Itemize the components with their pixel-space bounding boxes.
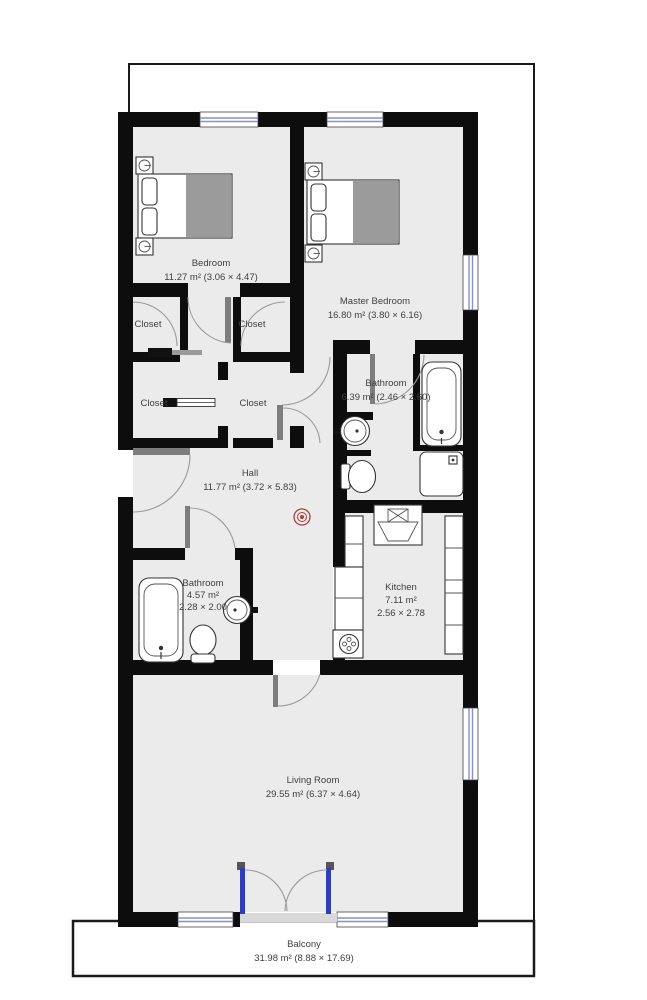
- kitchen-counter-right: [445, 516, 463, 654]
- bathtub-icon: [139, 578, 183, 662]
- french-door-panel-right: [326, 868, 331, 914]
- french-door-sill: [240, 913, 337, 922]
- master-bedroom-label: Master Bedroom: [340, 296, 410, 307]
- bathroom-master-label: Bathroom: [365, 378, 406, 389]
- stove-icon: [340, 635, 359, 654]
- window-living-bottom-left: [178, 912, 233, 927]
- bed-blanket: [353, 181, 398, 243]
- living-room-label: Living Room: [287, 775, 340, 786]
- living-room-door-leaf: [273, 675, 278, 707]
- bathroom-door-leaf: [185, 506, 190, 548]
- closet-bl-label: Closet: [141, 398, 168, 409]
- floor-plan-canvas: Bedroom 11.27 m² (3.06 × 4.47) Master Be…: [0, 0, 647, 1000]
- toilet-icon: [190, 625, 216, 663]
- entry-door-leaf: [133, 448, 190, 455]
- shower-icon: [420, 452, 463, 496]
- window-master-top: [327, 112, 383, 127]
- kitchen-dims: 2.56 × 2.78: [377, 608, 425, 619]
- closet-br-door-leaf: [277, 405, 283, 440]
- kitchen-label: Kitchen: [385, 582, 417, 593]
- balcony-label: Balcony: [287, 939, 321, 950]
- closet-br-label: Closet: [240, 398, 267, 409]
- bathroom-master-area: 6.39 m² (2.46 × 2.60): [342, 392, 431, 403]
- window-master-right: [463, 255, 478, 310]
- window-living-bottom-right: [337, 912, 388, 927]
- master-bedroom-area: 16.80 m² (3.80 × 6.16): [328, 310, 422, 321]
- closet-tl-label: Closet: [135, 319, 162, 330]
- bedroom-door-leaf: [225, 297, 231, 343]
- window-living-right: [463, 708, 478, 780]
- closet-tr-label: Closet: [239, 319, 266, 330]
- toilet-icon: [341, 461, 376, 493]
- closet-bl-sliding-door-icon: [163, 398, 215, 407]
- kitchen-area: 7.11 m²: [385, 595, 417, 606]
- bathroom-dims: 2.28 × 2.00: [179, 602, 227, 613]
- kitchen-sink-icon: [374, 505, 422, 545]
- balcony-area: 31.98 m² (8.88 × 17.69): [254, 953, 354, 964]
- bed-blanket: [186, 175, 231, 237]
- window-bedroom: [200, 112, 258, 127]
- french-door-panel-left: [240, 868, 245, 914]
- floor-plan: Bedroom 11.27 m² (3.06 × 4.47) Master Be…: [0, 0, 647, 1000]
- bathroom-label: Bathroom: [182, 578, 223, 589]
- bathtub-icon: [422, 362, 461, 446]
- bathroom-area: 4.57 m²: [187, 590, 219, 601]
- hall-label: Hall: [242, 468, 258, 479]
- living-room-area: 29.55 m² (6.37 × 4.64): [266, 789, 360, 800]
- bedroom-area: 11.27 m² (3.06 × 4.47): [164, 272, 258, 283]
- bedroom-label: Bedroom: [192, 258, 231, 269]
- hall-area: 11.77 m² (3.72 × 5.83): [203, 482, 297, 493]
